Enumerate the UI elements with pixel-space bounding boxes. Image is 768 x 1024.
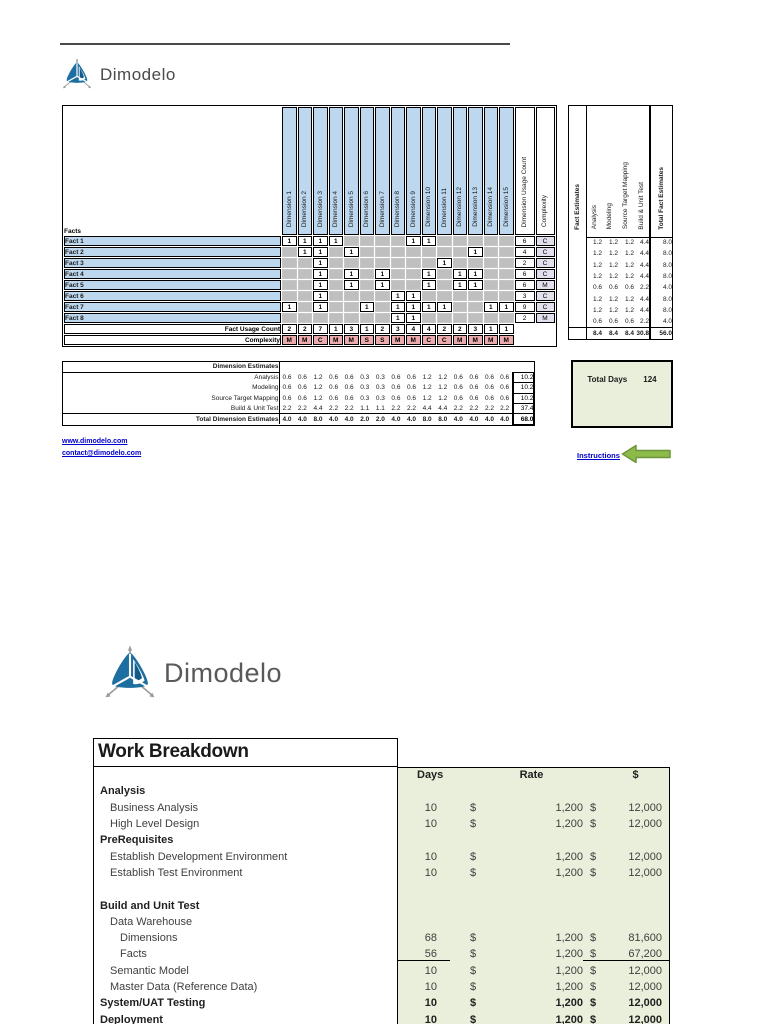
matrix-complexity-header: Complexity [536,107,555,235]
dimension-estimates-value: 2.2 [404,404,420,414]
dimension-estimates-row-total: 68.0 [513,414,534,424]
matrix-cell [484,236,499,246]
matrix-dimension-header: Dimension 7 [375,107,390,235]
rotated-header-label: Dimension 10 [425,185,432,229]
dimension-estimates-value: 0.6 [341,383,357,393]
matrix-fact-usage-value: 7 [313,324,328,334]
dimension-estimates-value: 8.0 [435,414,451,424]
fact-estimates-title: Fact Estimates [569,106,586,237]
wb-currency-symbol: $ [450,981,480,993]
matrix-fact-usage-value: 4 [422,324,437,334]
wb-rate-value: 1,200 [480,932,583,944]
matrix-cell [329,313,344,323]
dimension-estimates-value: 0.6 [451,393,467,403]
matrix-cell: 1 [422,236,437,246]
fact-estimates-row-spacer [569,237,586,248]
wb-task-label: Analysis [93,785,398,797]
fact-estimates-row-spacer [569,282,586,293]
rotated-header-label: Complexity [541,193,548,229]
matrix-complexity-value: C [536,258,555,268]
work-breakdown-row: High Level Design10$1,200$12,000 [93,816,670,832]
matrix-cell: 1 [499,302,514,312]
matrix-cell [282,258,297,268]
dimension-estimates-row-total: 10.2 [513,383,534,393]
wb-task-label: Master Data (Reference Data) [93,981,398,993]
matrix-fact-label: Fact 5 [64,280,281,290]
fact-estimates-value: 2.2 [634,316,650,327]
wb-days-value: 10 [398,818,450,830]
matrix-cell [360,258,375,268]
dimension-estimates-value: 0.6 [404,393,420,403]
dimension-estimates-value: 0.6 [497,383,513,393]
wb-rate-value: 1,200 [480,1014,583,1024]
matrix-cell [453,236,468,246]
matrix-dimension-complexity-value: C [313,335,328,345]
matrix-cell [344,313,359,323]
matrix-cell: 1 [313,258,328,268]
work-breakdown-row: Analysis [93,783,670,799]
dimension-estimates-value: 4.0 [295,414,311,424]
matrix-dimension-complexity-value: C [437,335,452,345]
dimension-estimates-value: 1.2 [310,372,326,382]
wb-col-days: Days [398,769,450,781]
dimension-estimates-value: 0.6 [341,372,357,382]
wb-amount-value: 12,000 [601,851,670,863]
matrix-cell [329,258,344,268]
matrix-cell [406,269,421,279]
matrix-cell [453,313,468,323]
matrix-dimension-complexity-value: M [344,335,359,345]
matrix-cell [499,247,514,257]
matrix-cell [360,269,375,279]
wb-amount-value: 12,000 [601,981,670,993]
fact-estimates-value: 1.2 [618,293,634,304]
instructions-link[interactable]: Instructions [577,451,620,460]
wb-amount-value: 12,000 [601,997,670,1009]
matrix-cell: 1 [484,302,499,312]
matrix-cell [406,258,421,268]
matrix-fact-usage-value: 1 [360,324,375,334]
matrix-cell [360,247,375,257]
matrix-usage-value: 9 [515,302,535,312]
fact-estimates-value: 4.4 [634,271,650,282]
rotated-header-label: Modeling [606,201,613,231]
work-breakdown-row: Business Analysis10$1,200$12,000 [93,800,670,816]
fact-estimates-value: 1.2 [602,305,618,316]
fact-estimates-column-total: 8.4 [602,327,618,338]
fact-estimates-row-spacer [569,327,586,338]
dimodelo-logo-icon [62,58,92,91]
dimension-estimates-value: 4.4 [310,404,326,414]
work-breakdown-row: System/UAT Testing10$1,200$12,000 [93,995,670,1011]
matrix-cell [484,313,499,323]
rotated-header-label: Dimension 3 [317,189,324,229]
dimension-estimates-value: 0.3 [373,372,389,382]
matrix-cell: 1 [406,291,421,301]
matrix-usage-value: 3 [515,291,535,301]
matrix-cell: 1 [453,280,468,290]
work-breakdown-row: Master Data (Reference Data)10$1,200$12,… [93,979,670,995]
matrix-cell [298,258,313,268]
matrix-fact-label: Fact 2 [64,247,281,257]
dimension-estimates-value: 0.6 [388,383,404,393]
wb-currency-symbol: $ [583,997,601,1009]
dimension-estimates-value: 8.0 [419,414,435,424]
matrix-usage-value: 6 [515,280,535,290]
email-link[interactable]: contact@dimodelo.com [62,450,141,457]
matrix-cell [298,302,313,312]
matrix-cell: 1 [313,247,328,257]
matrix-cell [468,302,483,312]
dimension-estimates-row-total: 37.4 [513,404,534,414]
dimension-estimates-value: 0.6 [341,393,357,403]
dimension-estimates-row-label: Total Dimension Estimates [63,414,279,424]
wb-amount-value: 67,200 [601,948,670,961]
matrix-cell: 1 [282,236,297,246]
matrix-cell [375,291,390,301]
matrix-cell [391,258,406,268]
dimension-estimates-value: 0.6 [388,372,404,382]
matrix-cell: 1 [313,236,328,246]
rotated-header-label: Build & Unit Test [638,180,645,232]
matrix-cell [499,236,514,246]
matrix-cell [375,258,390,268]
matrix-cell: 1 [437,302,452,312]
dimension-estimates-value: 0.3 [357,372,373,382]
matrix-cell [329,280,344,290]
dimension-estimates-value: 0.6 [326,372,342,382]
dimension-estimates-row-total: 10.2 [513,393,534,403]
fact-estimates-grand-total: 56.0 [650,327,672,338]
matrix-cell: 1 [391,291,406,301]
matrix-complexity-value: C [536,291,555,301]
dimension-estimates-value: 0.6 [497,393,513,403]
dimension-estimates-value: 1.2 [310,393,326,403]
dimension-estimates-value: 0.6 [451,372,467,382]
matrix-fact-usage-label: Fact Usage Count [64,324,281,334]
wb-task-label: PreRequisites [93,834,398,846]
dimension-estimates-value: 4.0 [388,414,404,424]
matrix-fact-usage-value: 3 [344,324,359,334]
matrix-cell [375,236,390,246]
matrix-cell: 1 [406,236,421,246]
work-breakdown-row: Semantic Model10$1,200$12,000 [93,963,670,979]
wb-task-label: Establish Development Environment [93,851,398,863]
matrix-dimension-complexity-value: M [282,335,297,345]
matrix-cell: 1 [468,280,483,290]
matrix-cell: 1 [453,269,468,279]
matrix-dimension-complexity-value: M [298,335,313,345]
matrix-cell [313,313,328,323]
matrix-fact-usage-value: 4 [406,324,421,334]
wb-currency-symbol: $ [583,981,601,993]
matrix-cell [499,313,514,323]
dimension-estimates-value: 4.0 [482,414,498,424]
dimension-estimates-value: 0.6 [295,372,311,382]
wb-amount-value: 12,000 [601,818,670,830]
dimension-estimates-value: 4.0 [279,414,295,424]
dimension-estimates-value: 0.6 [279,383,295,393]
dimension-estimates-value: 0.6 [466,393,482,403]
matrix-cell: 1 [468,269,483,279]
fact-estimates-value: 0.6 [586,316,602,327]
fact-estimates-value: 1.2 [602,293,618,304]
dimension-estimates-value: 1.2 [419,393,435,403]
matrix-cell [298,313,313,323]
matrix-cell: 1 [375,280,390,290]
dimension-estimates-value: 1.2 [310,383,326,393]
matrix-cell: 1 [313,269,328,279]
dimension-estimates-value: 8.0 [310,414,326,424]
matrix-dimension-header: Dimension 6 [360,107,375,235]
matrix-fact-usage-value: 2 [375,324,390,334]
matrix-dimension-complexity-value: M [484,335,499,345]
work-breakdown-row: Facts56$1,200$67,200 [93,946,670,962]
wb-rate-value: 1,200 [480,851,583,863]
wb-task-label: Build and Unit Test [93,900,398,912]
dimension-estimates-value: 0.6 [295,383,311,393]
wb-currency-symbol: $ [450,867,480,879]
matrix-cell [484,247,499,257]
wb-currency-symbol: $ [583,932,601,944]
fact-estimates-row-spacer [569,293,586,304]
total-days-box: Total Days 124 [571,360,673,428]
fact-estimates-value: 4.4 [634,293,650,304]
matrix-dimension-complexity-value: M [391,335,406,345]
matrix-cell [437,247,452,257]
dimension-estimates-value: 0.6 [482,383,498,393]
matrix-cell [484,269,499,279]
fact-estimates-value: 1.2 [586,260,602,271]
fact-estimates-value: 1.2 [602,237,618,248]
work-breakdown-row: Dimensions68$1,200$81,600 [93,930,670,946]
fact-estimates-value: 4.4 [634,237,650,248]
matrix-cell [437,236,452,246]
matrix-cell: 1 [282,302,297,312]
matrix-usage-value: 4 [515,247,535,257]
dimension-estimates-title: Dimension Estimates [63,362,279,372]
matrix-cell [375,247,390,257]
dimension-estimates-value: 0.6 [295,393,311,403]
dimension-estimates-row-label: Modeling [63,383,279,393]
fact-estimates-value: 1.2 [586,293,602,304]
fact-estimates-total-header: Total Fact Estimates [650,106,672,237]
matrix-dimension-complexity-value: M [468,335,483,345]
wb-days-value: 10 [398,981,450,993]
wb-task-label: Deployment [93,1014,398,1024]
matrix-fact-usage-value: 3 [468,324,483,334]
fact-estimates-value: 0.6 [586,282,602,293]
fact-estimates-value: 1.2 [618,237,634,248]
work-breakdown-row: Establish Development Environment10$1,20… [93,848,670,864]
matrix-fact-usage-value: 1 [484,324,499,334]
matrix-cell [344,291,359,301]
dimension-estimates-value: 0.3 [373,383,389,393]
dimension-estimates-value: 4.0 [404,414,420,424]
dimension-estimates-value: 0.6 [466,372,482,382]
matrix-fact-usage-value: 3 [391,324,406,334]
matrix-cell [344,258,359,268]
matrix-dimension-header: Dimension 8 [391,107,406,235]
matrix-dimension-header: Dimension 4 [329,107,344,235]
matrix-dimension-header: Dimension 1 [282,107,297,235]
matrix-fact-label: Fact 6 [64,291,281,301]
wb-currency-symbol: $ [450,948,480,960]
dimension-estimates-value: 2.2 [295,404,311,414]
matrix-cell: 1 [329,236,344,246]
dimension-estimates-row-label: Analysis [63,372,279,382]
matrix-dimension-complexity-value: C [422,335,437,345]
matrix-dimension-header: Dimension 12 [453,107,468,235]
wb-rate-value: 1,200 [480,867,583,879]
wb-currency-symbol: $ [450,851,480,863]
matrix-fact-usage-value: 2 [282,324,297,334]
fact-estimates-value: 0.6 [602,316,618,327]
wb-task-label: Data Warehouse [93,916,398,928]
wb-currency-symbol: $ [583,1014,601,1024]
matrix-facts-header: Facts [64,107,281,235]
brand-header-page2: Dimodelo [104,645,282,702]
matrix-usage-value: 2 [515,258,535,268]
matrix-cell: 1 [406,302,421,312]
fact-estimates-value: 0.6 [618,316,634,327]
matrix-cell: 1 [422,269,437,279]
matrix-cell [422,291,437,301]
fact-estimates-value: 1.2 [602,260,618,271]
matrix-fact-label: Fact 3 [64,258,281,268]
dimension-estimates-value: 2.2 [451,404,467,414]
matrix-cell [499,258,514,268]
fact-estimates-row-spacer [569,248,586,259]
wb-task-label: Facts [93,948,398,960]
wb-days-value: 10 [398,851,450,863]
dimension-estimates-value: 0.6 [279,372,295,382]
matrix-cell [468,291,483,301]
work-breakdown-row: Data Warehouse [93,914,670,930]
matrix-usage-count-header: Dimension Usage Count [515,107,535,235]
work-breakdown-spacer-row [93,881,670,897]
dimension-estimates-value: 2.2 [326,404,342,414]
fact-estimates-column-total: 8.4 [618,327,634,338]
wb-amount-value: 12,000 [601,965,670,977]
dimension-estimates-value: 1.1 [373,404,389,414]
matrix-usage-value: 2 [515,313,535,323]
rotated-header-label: Dimension 15 [503,185,510,229]
dimension-estimates-value: 4.0 [326,414,342,424]
brand-name: Dimodelo [164,658,282,689]
total-days-label: Total Days [587,375,627,384]
matrix-cell [422,258,437,268]
matrix-cell: 1 [422,302,437,312]
fact-dimension-matrix: FactsDimension 1Dimension 2Dimension 3Di… [63,106,556,346]
fact-estimates-value: 1.2 [618,271,634,282]
matrix-cell [437,291,452,301]
dimension-estimates-value: 0.6 [404,383,420,393]
fact-estimates-value: 1.2 [586,305,602,316]
wb-days-value: 10 [398,997,450,1009]
dimodelo-logo-icon [104,645,156,702]
fact-estimates-value: 1.2 [618,248,634,259]
dimension-estimates-table: Dimension EstimatesAnalysis0.60.61.20.60… [63,362,534,425]
matrix-cell [422,247,437,257]
matrix-fact-label: Fact 1 [64,236,281,246]
dimension-estimates-value: 1.2 [419,372,435,382]
matrix-usage-value: 6 [515,236,535,246]
dimension-estimates-value: 0.3 [373,393,389,403]
rotated-header-label: Dimension 14 [487,185,494,229]
dimension-estimates-value: 2.0 [373,414,389,424]
fact-estimates-row-total: 8.0 [650,260,672,271]
matrix-cell [329,291,344,301]
matrix-cell: 1 [406,313,421,323]
matrix-cell: 1 [298,247,313,257]
website-link[interactable]: www.dimodelo.com [62,438,127,445]
matrix-cell [298,291,313,301]
wb-currency-symbol: $ [583,965,601,977]
matrix-cell [360,313,375,323]
work-breakdown-rows: DaysRate$AnalysisBusiness Analysis10$1,2… [93,767,670,1024]
wb-amount-value: 12,000 [601,1014,670,1024]
wb-currency-symbol: $ [450,802,480,814]
wb-currency-symbol: $ [583,851,601,863]
dimension-estimates-value: 0.6 [326,393,342,403]
matrix-cell [391,247,406,257]
rotated-header-label: Dimension Usage Count [521,155,528,229]
dimension-estimates-value: 1.2 [419,383,435,393]
wb-col-amount: $ [601,769,670,781]
matrix-complexity-value: C [536,236,555,246]
matrix-cell [375,302,390,312]
fact-estimates-row-total: 8.0 [650,271,672,282]
matrix-cell [468,258,483,268]
wb-rate-value: 1,200 [480,948,583,960]
wb-days-value: 68 [398,932,450,944]
dimension-estimates-value: 0.3 [357,393,373,403]
matrix-cell [453,247,468,257]
matrix-cell [453,302,468,312]
dimension-estimates-value: 4.0 [466,414,482,424]
matrix-cell [329,247,344,257]
fact-estimates-value: 1.2 [602,271,618,282]
fact-estimates-value: 4.4 [634,248,650,259]
dimension-estimates-row-label: Source Target Mapping [63,393,279,403]
matrix-cell [468,236,483,246]
work-breakdown-header-row: DaysRate$ [93,767,670,783]
matrix-complexity-value: M [536,313,555,323]
matrix-fact-usage-value: 2 [453,324,468,334]
fact-estimates-row-total: 4.0 [650,282,672,293]
matrix-cell [329,269,344,279]
dimension-estimates-row-total: 10.2 [513,372,534,382]
matrix-complexity-value: C [536,302,555,312]
matrix-dimension-header: Dimension 10 [422,107,437,235]
matrix-cell [298,269,313,279]
total-days-value: 124 [643,375,656,384]
wb-rate-value: 1,200 [480,965,583,977]
matrix-cell [453,258,468,268]
matrix-cell [282,247,297,257]
fact-estimates-value: 1.2 [602,248,618,259]
matrix-cell [437,313,452,323]
fact-estimates-value: 1.2 [618,305,634,316]
matrix-cell [391,269,406,279]
rotated-header-label: Dimension 2 [301,189,308,229]
wb-currency-symbol: $ [450,1014,480,1024]
matrix-cell [499,291,514,301]
matrix-dimension-header: Dimension 3 [313,107,328,235]
fact-estimates-column-header: Build & Unit Test [634,106,650,237]
wb-currency-symbol: $ [583,818,601,830]
